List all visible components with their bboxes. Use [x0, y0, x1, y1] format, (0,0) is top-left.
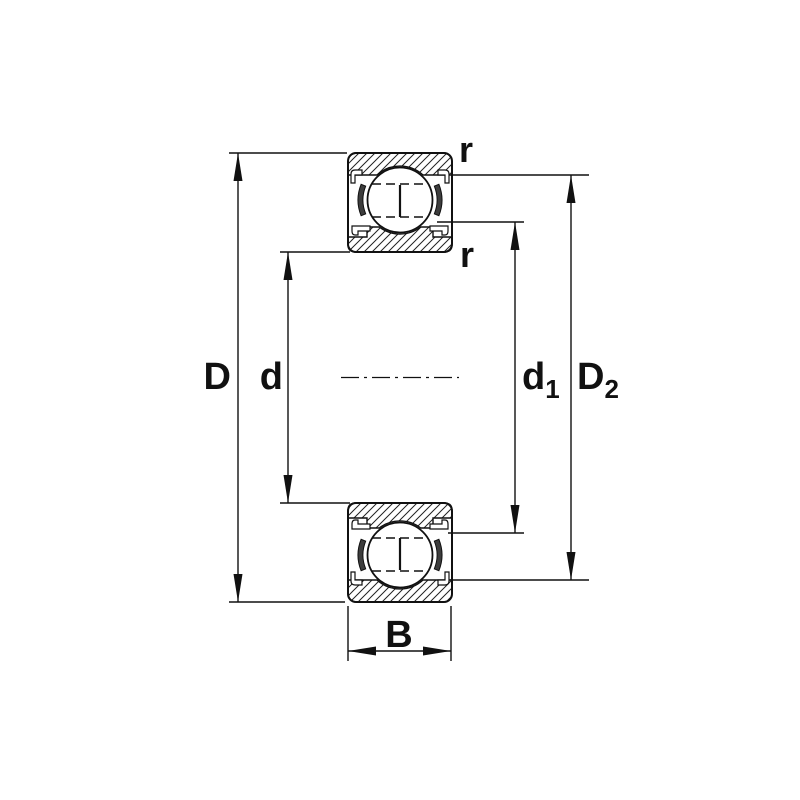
label-outer-land: D2: [577, 356, 619, 404]
arrowhead-up: [284, 252, 293, 280]
dimension-d1: d1: [437, 222, 560, 533]
arrowhead-down: [567, 552, 576, 580]
bearing-cross-section-diagram: D d d1 D2 B r r: [0, 0, 800, 800]
dimension-B: B: [348, 606, 451, 661]
arrowhead-down: [511, 505, 520, 533]
label-corner-radius-bottom: r: [460, 234, 474, 275]
label-bore-diameter: d: [260, 356, 283, 398]
label-corner-radius-top: r: [459, 129, 473, 170]
bearing-top-section: [348, 153, 452, 252]
arrowhead-left: [348, 647, 376, 656]
arrowhead-up: [567, 175, 576, 203]
arrowhead-up: [234, 153, 243, 181]
arrowhead-right: [423, 647, 451, 656]
bearing-bottom-section: [348, 503, 452, 602]
label-outer-diameter: D: [204, 356, 231, 398]
arrowhead-up: [511, 222, 520, 250]
label-width: B: [385, 614, 412, 656]
drawing-canvas: D d d1 D2 B r r: [0, 0, 800, 800]
arrowhead-down: [284, 475, 293, 503]
label-inner-shoulder: d1: [522, 356, 560, 404]
arrowhead-down: [234, 574, 243, 602]
dimension-d: d: [260, 252, 350, 503]
